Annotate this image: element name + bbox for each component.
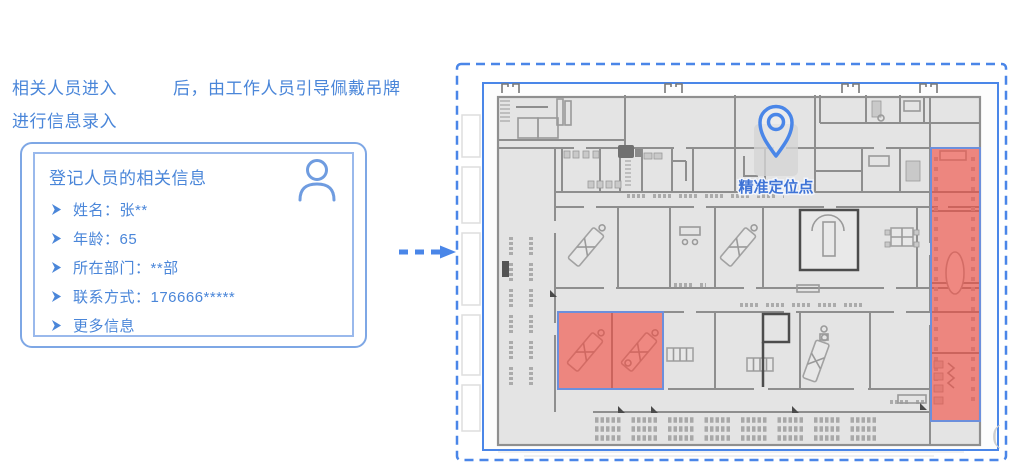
highlight-zone-rooms	[558, 312, 663, 389]
info-item-contact: 联系方式：176666*****	[51, 282, 340, 311]
info-item-text: 姓名：张**	[73, 199, 148, 220]
stray-paren-mark: (	[992, 420, 1001, 449]
info-item-text: 所在部门：**部	[73, 257, 179, 278]
floor-plan: 精准定位点 (	[454, 61, 1012, 463]
info-item-text: 年龄：65	[73, 228, 137, 249]
intro-line2: 进行信息录入	[12, 105, 401, 138]
info-card-inner: 登记人员的相关信息 姓名：张** 年龄：65 所在部门：**部 联系方式：176…	[33, 152, 354, 337]
bullet-arrow-icon	[51, 319, 62, 332]
slide-canvas: 相关人员进入后，由工作人员引导佩戴吊牌 进行信息录入 登记人员的相关信息 姓名：…	[0, 0, 1024, 475]
intro-line1-part2: 后，由工作人员引导佩戴吊牌	[173, 79, 401, 98]
flow-arrow-icon	[398, 245, 458, 259]
info-item-department: 所在部门：**部	[51, 253, 340, 282]
intro-line1: 相关人员进入后，由工作人员引导佩戴吊牌	[12, 72, 401, 105]
plan-outside-sketch	[462, 101, 484, 441]
info-card: 登记人员的相关信息 姓名：张** 年龄：65 所在部门：**部 联系方式：176…	[20, 142, 367, 348]
info-item-text: 联系方式：176666*****	[73, 286, 235, 307]
info-item-more: 更多信息	[51, 311, 340, 340]
info-list: 姓名：张** 年龄：65 所在部门：**部 联系方式：176666***** 更…	[51, 195, 340, 340]
person-icon	[295, 157, 339, 204]
intro-line1-part1: 相关人员进入	[12, 79, 117, 98]
bullet-arrow-icon	[51, 203, 62, 216]
bullet-arrow-icon	[51, 261, 62, 274]
info-item-text: 更多信息	[73, 315, 135, 336]
highlight-zone-corridor	[931, 148, 980, 421]
bullet-arrow-icon	[51, 232, 62, 245]
bullet-arrow-icon	[51, 290, 62, 303]
plan-outline	[498, 97, 980, 445]
intro-text: 相关人员进入后，由工作人员引导佩戴吊牌 进行信息录入	[12, 72, 401, 138]
pin-label: 精准定位点	[738, 178, 813, 196]
info-item-age: 年龄：65	[51, 224, 340, 253]
